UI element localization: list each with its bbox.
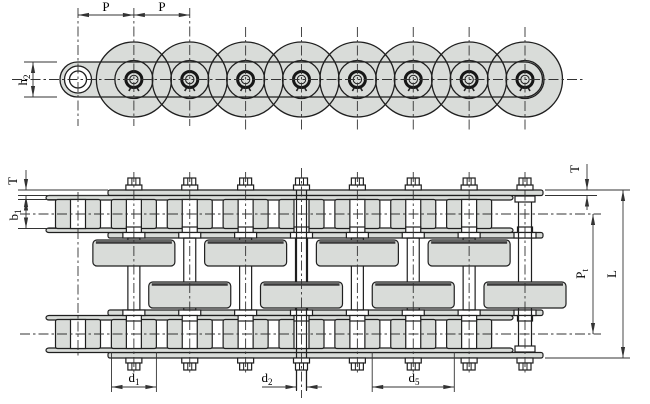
dim-label-pt: Pt [573, 269, 590, 279]
dim-label-b1: b1 [6, 210, 23, 221]
dim-label-d5: d5 [409, 370, 421, 387]
bottom-view-geometry [18, 164, 630, 398]
drawing-canvas: P P h2 T b1 d1 d2 d5 T Pt L [0, 0, 650, 404]
dim-label-h2: h2 [15, 75, 32, 86]
dim-label-d1: d1 [129, 370, 140, 387]
dim-label-l: L [604, 270, 619, 278]
dim-label-pitch-1: P [102, 0, 109, 14]
chain-technical-drawing: P P h2 T b1 d1 d2 d5 T Pt L [0, 0, 650, 404]
dim-label-t-left: T [5, 177, 20, 185]
dim-label-t-right: T [567, 165, 582, 173]
top-view-geometry [12, 8, 585, 131]
bottom-view-plan: T b1 d1 d2 d5 T Pt L [5, 164, 630, 398]
top-view-side-elevation: P P h2 [12, 0, 585, 131]
dim-label-pitch-2: P [158, 0, 165, 14]
dim-label-d2: d2 [262, 370, 273, 387]
